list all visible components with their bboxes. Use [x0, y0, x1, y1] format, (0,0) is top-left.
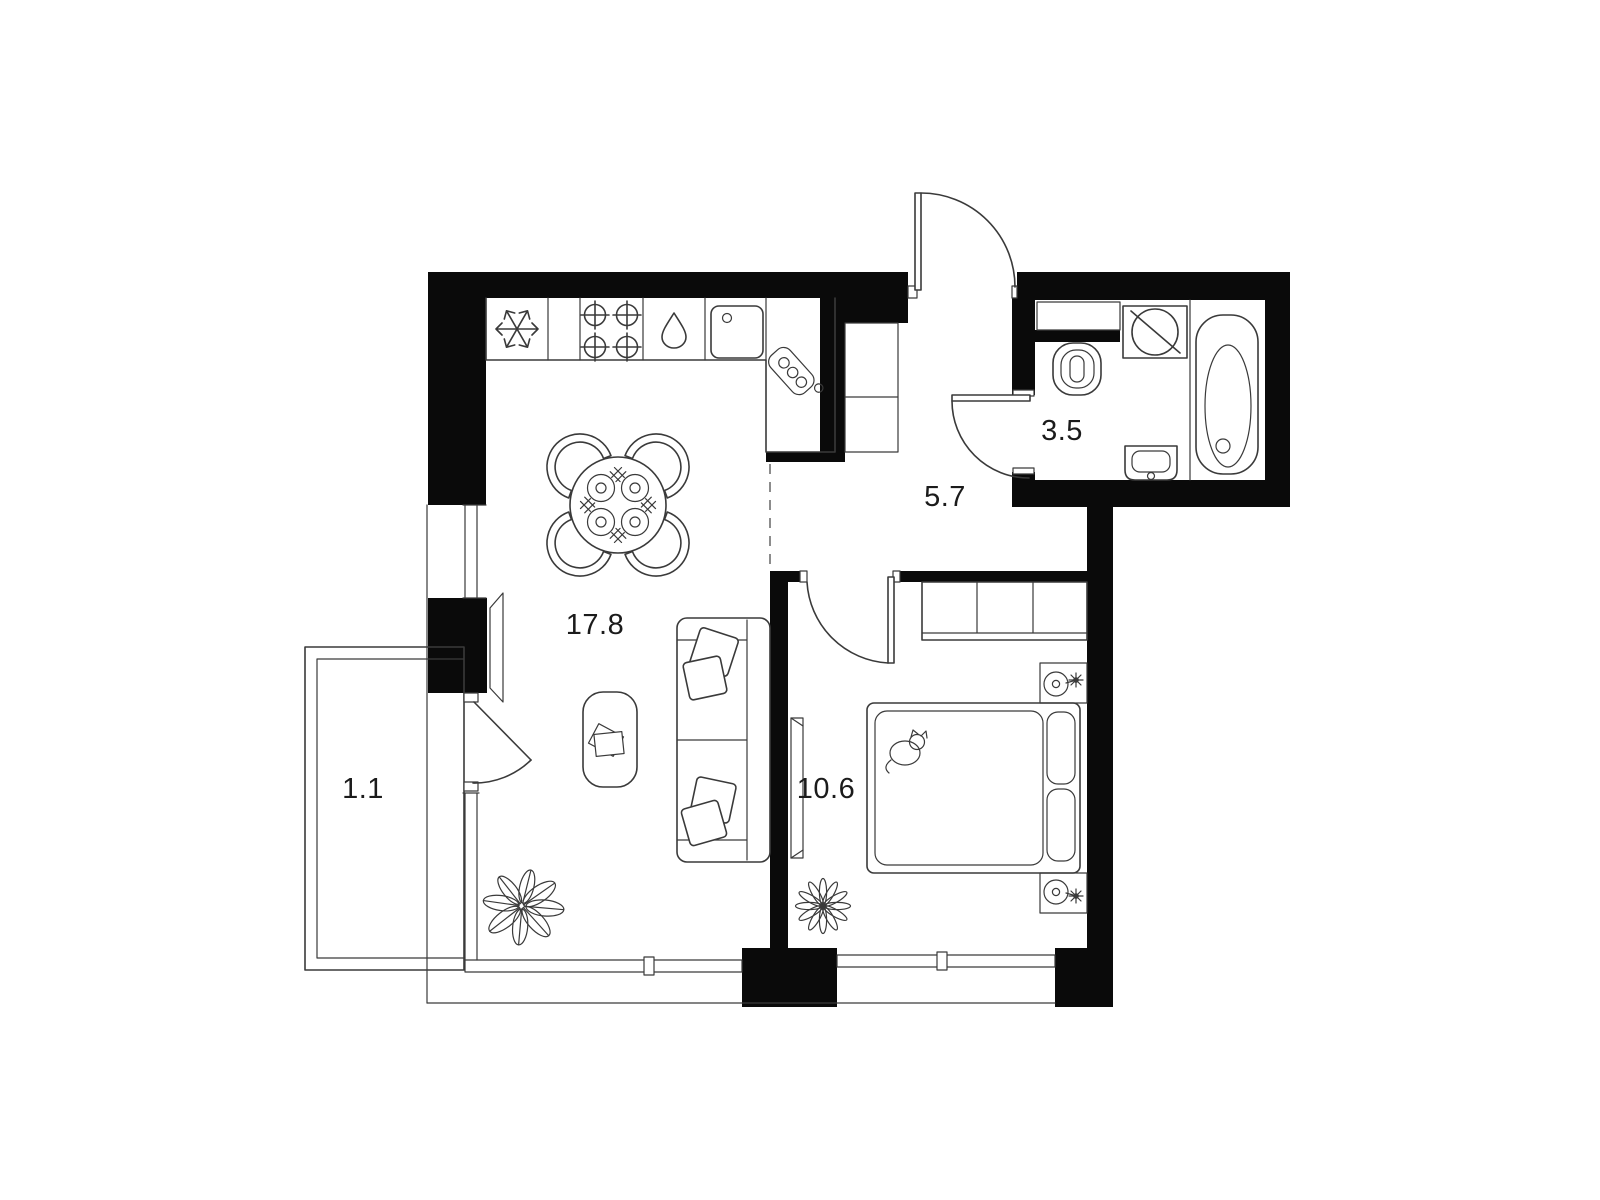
cutting-board-icon	[765, 344, 825, 406]
balcony-door-swing	[473, 760, 531, 783]
bathroom-door-leaf	[952, 395, 1030, 401]
balcony-parapet	[305, 647, 464, 970]
bedroom-door-swing	[807, 582, 888, 663]
room-label-bedroom: 10.6	[797, 773, 855, 805]
balcony-door-leaf	[474, 702, 531, 760]
toilet-icon	[1053, 343, 1101, 395]
window-mullion	[644, 957, 654, 975]
bed	[867, 703, 1080, 873]
room-label-balcony: 1.1	[342, 773, 384, 805]
walls	[428, 272, 1290, 1007]
room-label-bathroom: 3.5	[1041, 415, 1083, 447]
bathroom-door	[952, 390, 1034, 478]
room-label-hallway: 5.7	[924, 481, 966, 513]
tv-icon	[490, 593, 503, 702]
bed-pillow	[1047, 789, 1075, 861]
floor-plan-page: 17.8 5.7 3.5 10.6 1.1	[0, 0, 1600, 1200]
washing-machine-icon	[1123, 306, 1187, 358]
book	[594, 732, 624, 757]
window-mullion	[937, 952, 947, 970]
bathtub-icon	[1190, 300, 1258, 480]
duct-niche	[1037, 302, 1120, 330]
entrance-door-swing	[921, 193, 1015, 287]
dishwasher-drop-icon	[662, 313, 686, 348]
room-label-living-kitchen: 17.8	[566, 609, 624, 641]
bathroom-door-swing	[952, 401, 1029, 478]
plant-bedroom-icon	[796, 879, 851, 934]
plant-living-icon	[482, 868, 564, 945]
fridge-icon	[496, 308, 538, 350]
nightstand-top	[1040, 663, 1087, 703]
entrance-door	[908, 193, 1017, 298]
entrance-door-leaf	[915, 193, 921, 290]
stove-icon	[581, 301, 641, 361]
sofa	[677, 618, 770, 862]
balcony-door	[464, 693, 531, 791]
bed-pillow	[1047, 712, 1075, 784]
kitchen-sink-icon	[711, 306, 763, 358]
kitchen-counter	[486, 298, 835, 452]
wardrobe	[922, 582, 1087, 640]
hall-closet	[845, 323, 898, 452]
bedroom-door-leaf	[888, 577, 894, 663]
bedroom-door	[800, 571, 900, 663]
nightstand-bottom	[1040, 873, 1087, 913]
sofa-pillow	[682, 655, 727, 700]
bathroom-sink-icon	[1125, 446, 1177, 480]
coffee-table	[583, 692, 637, 787]
floor-plan-drawing: 17.8 5.7 3.5 10.6 1.1	[0, 0, 1600, 1200]
bathroom-fixtures	[1037, 300, 1258, 480]
